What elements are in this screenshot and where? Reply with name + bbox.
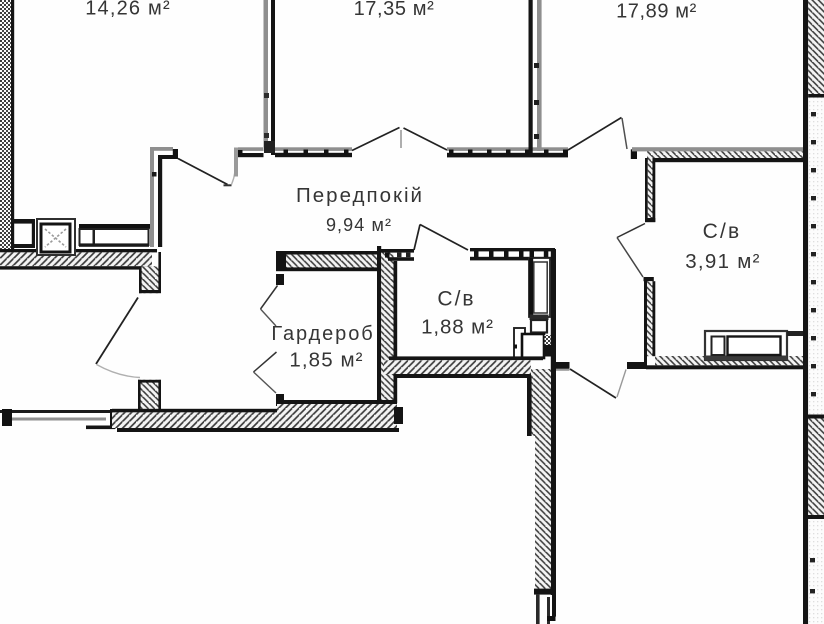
svg-text:1,85 м²: 1,85 м²	[289, 349, 363, 372]
svg-text:Передпокій: Передпокій	[296, 184, 424, 207]
svg-text:С/в: С/в	[437, 288, 475, 311]
svg-text:17,89 м²: 17,89 м²	[616, 1, 697, 23]
svg-text:9,94 м²: 9,94 м²	[326, 215, 392, 235]
svg-text:17,35 м²: 17,35 м²	[354, 0, 435, 20]
svg-text:С/в: С/в	[703, 220, 742, 243]
svg-text:Гардероб: Гардероб	[271, 323, 374, 345]
svg-text:1,88 м²: 1,88 м²	[421, 316, 494, 339]
svg-text:3,91 м²: 3,91 м²	[685, 250, 761, 273]
svg-text:14,26 м²: 14,26 м²	[85, 0, 171, 20]
